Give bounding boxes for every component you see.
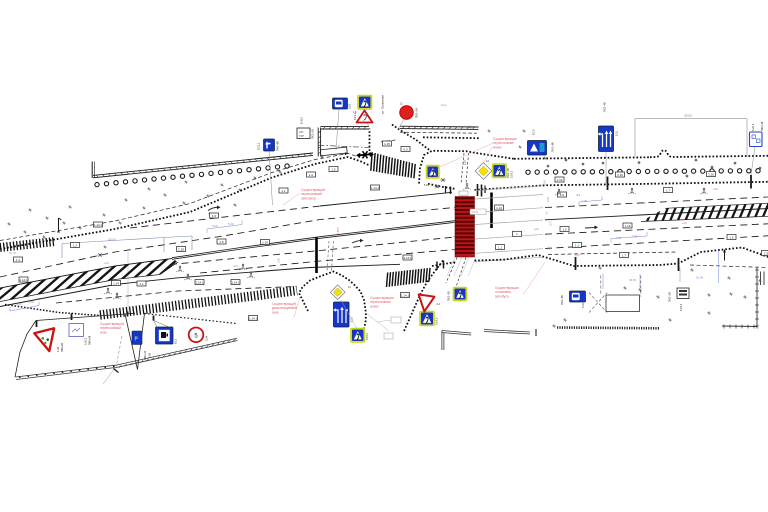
svg-text:ПК1+85: ПК1+85 — [560, 295, 564, 305]
svg-text:1.18: 1.18 — [178, 247, 184, 251]
svg-text:1.14: 1.14 — [496, 206, 502, 210]
svg-text:1.14.1: 1.14.1 — [403, 256, 412, 260]
svg-text:8.21.1: 8.21.1 — [257, 142, 261, 150]
svg-text:1.5: 1.5 — [212, 214, 217, 218]
svg-text:светофор: светофор — [301, 196, 316, 200]
svg-text:автобуса: автобуса — [495, 294, 509, 298]
svg-text:ПК2+05: ПК2+05 — [668, 292, 672, 302]
svg-text:5.19.2: 5.19.2 — [435, 317, 439, 325]
svg-text:7,50: 7,50 — [632, 235, 638, 239]
svg-text:5.19: 5.19 — [424, 184, 429, 187]
svg-text:ПК1+40: ПК1+40 — [603, 102, 607, 112]
svg-text:5.20.2: 5.20.2 — [751, 123, 755, 131]
svg-text:ПК0+41: ПК0+41 — [143, 350, 147, 360]
svg-text:1.2: 1.2 — [73, 243, 78, 247]
svg-text:2,1%: 2,1% — [472, 210, 479, 214]
svg-text:+0,5: +0,5 — [534, 228, 539, 231]
svg-text:ПК1+50: ПК1+50 — [447, 291, 451, 301]
svg-text:ПК1+03: ПК1+03 — [311, 129, 315, 139]
svg-text:1.14.1: 1.14.1 — [231, 280, 240, 284]
svg-text:1.34: 1.34 — [56, 346, 60, 352]
svg-text:ПК2+18: ПК2+18 — [760, 121, 764, 131]
svg-text:ПК1+45: ПК1+45 — [506, 168, 510, 178]
svg-text:0.0: 0.0 — [403, 147, 408, 151]
svg-text:1.15: 1.15 — [464, 160, 467, 165]
svg-text:+0,5: +0,5 — [641, 202, 646, 205]
svg-text:3.24: 3.24 — [205, 335, 209, 341]
svg-text:1.1: 1.1 — [139, 282, 144, 286]
svg-text:1.14.1: 1.14.1 — [401, 293, 410, 297]
svg-text:1.16: 1.16 — [708, 172, 714, 176]
svg-text:сущ.борт: сущ.борт — [338, 226, 340, 237]
svg-text:5.19.1: 5.19.1 — [366, 332, 369, 340]
svg-text:+0,5: +0,5 — [576, 195, 581, 197]
svg-text:6.13: 6.13 — [174, 338, 178, 344]
svg-text:7,50: 7,50 — [616, 236, 622, 240]
svg-text:1.14.1: 1.14.1 — [195, 280, 204, 284]
svg-text:+0,5: +0,5 — [682, 222, 687, 225]
svg-text:3,75: 3,75 — [549, 220, 553, 226]
svg-text:1.1: 1.1 — [16, 258, 21, 262]
svg-text:ПК0+80: ПК0+80 — [276, 141, 280, 151]
svg-text:5.15: 5.15 — [351, 317, 354, 322]
svg-text:4,00: 4,00 — [16, 302, 22, 306]
svg-text:Трм: Трм — [441, 103, 446, 107]
svg-text:5.19.1: 5.19.1 — [510, 170, 514, 178]
svg-text:6,00: 6,00 — [212, 224, 218, 228]
svg-text:30,00: 30,00 — [684, 114, 692, 118]
svg-text:1.7: 1.7 — [622, 253, 627, 257]
svg-text:+0,5: +0,5 — [104, 262, 109, 265]
svg-text:3,00: 3,00 — [546, 196, 550, 202]
svg-text:1,00: 1,00 — [28, 300, 34, 304]
svg-text:1.7: 1.7 — [666, 188, 671, 192]
svg-text:1.14.1: 1.14.1 — [94, 223, 103, 227]
svg-text:знаки: знаки — [370, 304, 379, 308]
svg-text:знак: знак — [100, 330, 107, 334]
svg-text:1.1: 1.1 — [281, 189, 286, 193]
svg-text:+0,5: +0,5 — [713, 188, 718, 191]
svg-text:ПК1+80: ПК1+80 — [551, 142, 555, 152]
svg-text:+0,5: +0,5 — [233, 265, 238, 268]
svg-text:5.08: 5.08 — [148, 352, 152, 358]
svg-text:1.16: 1.16 — [625, 224, 631, 228]
svg-text:5.16.2: 5.16.2 — [679, 303, 683, 311]
svg-text:ТУР: ТУР — [299, 134, 304, 138]
svg-text:1.14: 1.14 — [113, 281, 119, 285]
svg-text:3,00: 3,00 — [543, 179, 547, 185]
svg-text:ул. Трактовая: ул. Трактовая — [381, 95, 385, 114]
svg-text:1.5: 1.5 — [331, 167, 336, 171]
svg-text:1.14.1: 1.14.1 — [19, 278, 28, 282]
svg-text:50,00: 50,00 — [108, 238, 116, 242]
svg-text:+0,5: +0,5 — [575, 254, 580, 257]
svg-text:5.16: 5.16 — [348, 103, 352, 109]
svg-text:10,00: 10,00 — [696, 276, 703, 280]
svg-text:ПК0+08: ПК0+08 — [88, 335, 92, 345]
svg-text:1.16: 1.16 — [262, 240, 268, 244]
svg-text:обл: обл — [299, 130, 304, 134]
svg-text:1.15: 1.15 — [384, 142, 390, 146]
svg-text:1.5: 1.5 — [764, 251, 768, 255]
svg-text:6.41.2: 6.41.2 — [301, 116, 304, 124]
svg-text:+0,5: +0,5 — [35, 298, 40, 301]
svg-text:знаки: знаки — [493, 145, 502, 149]
svg-text:знак: знак — [272, 310, 279, 314]
svg-text:1.16: 1.16 — [557, 178, 563, 182]
svg-text:6.2.5: 6.2.5 — [533, 129, 536, 135]
svg-text:1.5: 1.5 — [729, 235, 734, 239]
svg-text:1.1: 1.1 — [575, 243, 580, 247]
svg-text:ПК0+80: ПК0+80 — [60, 342, 64, 352]
svg-text:5.15: 5.15 — [616, 131, 619, 136]
svg-text:45,00: 45,00 — [629, 278, 636, 282]
svg-text:1.1: 1.1 — [498, 245, 503, 249]
svg-text:5,00: 5,00 — [228, 222, 234, 226]
svg-text:50,00: 50,00 — [9, 251, 16, 255]
svg-text:1.16: 1.16 — [617, 173, 623, 177]
svg-text:5.20.2: 5.20.2 — [84, 337, 88, 345]
svg-text:1.5: 1.5 — [562, 227, 567, 231]
svg-text:1.5: 1.5 — [219, 240, 224, 244]
svg-text:3,00: 3,00 — [277, 257, 281, 263]
svg-text:1,00: 1,00 — [582, 199, 588, 203]
svg-text:5.16: 5.16 — [582, 303, 585, 308]
svg-text:ПК2+24: ПК2+24 — [415, 108, 419, 118]
svg-text:1.14.1: 1.14.1 — [371, 186, 380, 190]
svg-text:1.14.1: 1.14.1 — [249, 316, 258, 320]
svg-text:1.2: 1.2 — [309, 173, 314, 177]
